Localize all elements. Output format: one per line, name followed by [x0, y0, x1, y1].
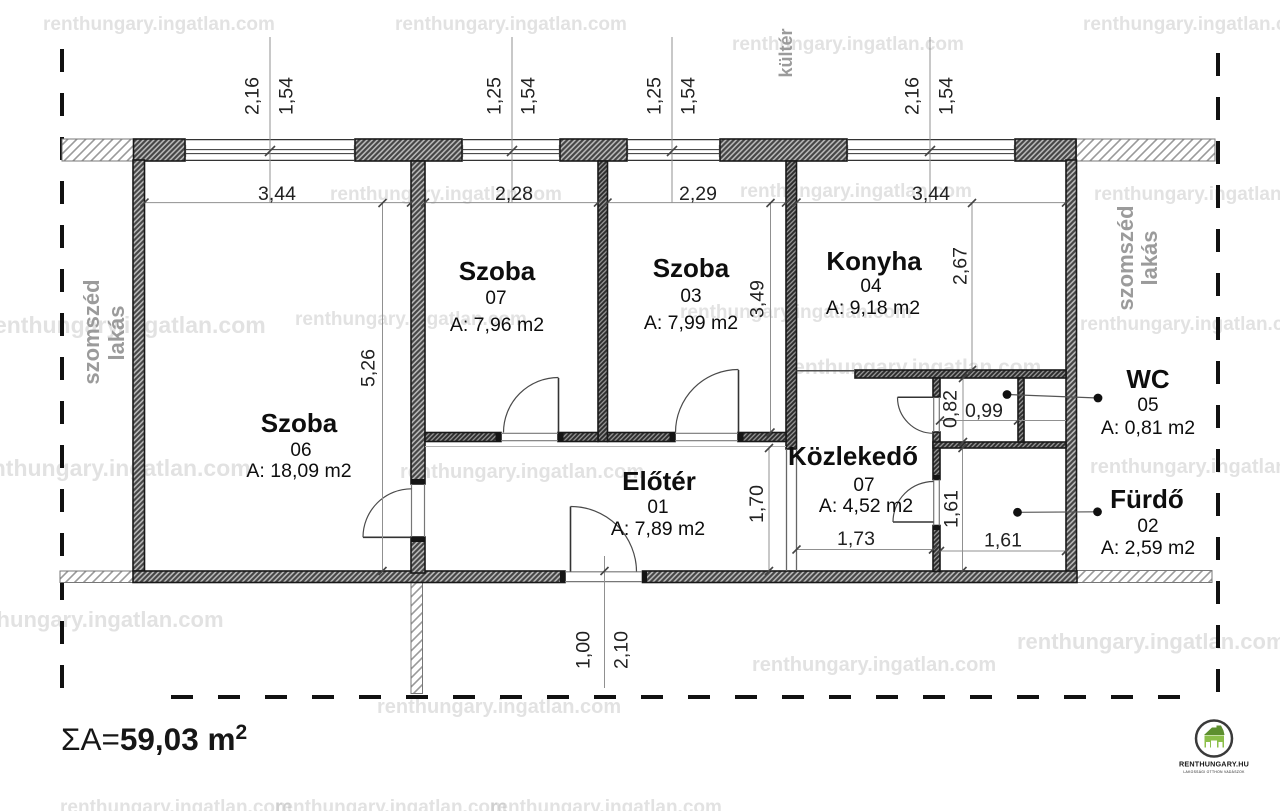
svg-text:Szoba: Szoba [653, 253, 730, 283]
svg-text:Előtér: Előtér [622, 466, 696, 496]
svg-text:01: 01 [647, 497, 668, 518]
svg-text:2,16: 2,16 [242, 77, 264, 115]
svg-text:renthungary.ingatlan.com: renthungary.ingatlan.com [275, 797, 507, 811]
svg-text:1,54: 1,54 [276, 77, 298, 115]
svg-text:1,25: 1,25 [644, 77, 666, 115]
svg-text:0,99: 0,99 [965, 400, 1003, 422]
svg-text:renthungary.ingatlan.com: renthungary.ingatlan.com [1094, 184, 1280, 205]
svg-text:renthungary.ingatlan.com: renthungary.ingatlan.com [60, 797, 292, 811]
svg-text:renthungary.ingatlan.com: renthungary.ingatlan.com [395, 14, 627, 35]
svg-text:03: 03 [680, 286, 701, 307]
svg-text:szomszéd: szomszéd [1113, 205, 1138, 310]
svg-text:2,16: 2,16 [902, 77, 924, 115]
svg-text:A: 9,18 m2: A: 9,18 m2 [826, 297, 920, 319]
svg-text:Szoba: Szoba [261, 408, 338, 438]
svg-text:A: 7,96 m2: A: 7,96 m2 [450, 314, 544, 336]
svg-text:renthungary.ingatlan.com: renthungary.ingatlan.com [1080, 314, 1280, 335]
svg-text:1,61: 1,61 [984, 530, 1022, 552]
svg-text:0,82: 0,82 [940, 390, 962, 428]
svg-text:1,73: 1,73 [837, 528, 875, 550]
svg-text:A: 18,09 m2: A: 18,09 m2 [246, 460, 351, 482]
svg-text:Fürdő: Fürdő [1110, 484, 1184, 514]
svg-text:1,54: 1,54 [518, 77, 540, 115]
svg-text:szomszéd: szomszéd [79, 279, 104, 384]
svg-text:3,44: 3,44 [258, 183, 296, 205]
svg-text:3,44: 3,44 [912, 183, 950, 205]
svg-text:06: 06 [290, 440, 311, 461]
svg-text:renthungary.ingatlan.com: renthungary.ingatlan.com [1083, 14, 1280, 35]
svg-text:kültér: kültér [776, 28, 796, 77]
svg-text:A: 7,89 m2: A: 7,89 m2 [611, 518, 705, 540]
svg-text:renthungary.ingatlan.com: renthungary.ingatlan.com [377, 696, 621, 718]
svg-text:A: 4,52 m2: A: 4,52 m2 [819, 495, 913, 517]
svg-text:2,67: 2,67 [950, 247, 972, 285]
svg-text:renthungary.ingatlan.com: renthungary.ingatlan.com [400, 461, 644, 483]
svg-text:renthungary.ingatlan.com: renthungary.ingatlan.com [43, 14, 275, 35]
svg-text:04: 04 [860, 276, 882, 297]
svg-text:renthungary.ingatlan.com: renthungary.ingatlan.com [732, 34, 964, 55]
svg-text:LAKOSSÁGI OTTHON VADÁSZOK: LAKOSSÁGI OTTHON VADÁSZOK [1183, 770, 1245, 774]
svg-text:A: 2,59 m2: A: 2,59 m2 [1101, 537, 1195, 559]
svg-text:3,49: 3,49 [747, 280, 769, 318]
svg-text:WC: WC [1126, 364, 1170, 394]
svg-text:Közlekedő: Közlekedő [788, 441, 918, 471]
svg-text:Konyha: Konyha [826, 246, 922, 276]
svg-text:renthungary.ingatlan.com: renthungary.ingatlan.com [0, 607, 224, 632]
svg-text:07: 07 [485, 288, 506, 309]
svg-text:2,10: 2,10 [611, 631, 633, 669]
svg-text:02: 02 [1137, 516, 1158, 537]
svg-text:2,29: 2,29 [679, 183, 717, 205]
svg-text:A: 7,99 m2: A: 7,99 m2 [644, 312, 738, 334]
svg-text:renthungary.ingatlan.com: renthungary.ingatlan.com [1090, 456, 1280, 478]
svg-text:05: 05 [1137, 395, 1158, 416]
svg-text:renthungary.ingatlan.com: renthungary.ingatlan.com [752, 654, 996, 676]
svg-text:1,00: 1,00 [573, 631, 595, 669]
svg-text:5,26: 5,26 [358, 349, 380, 387]
svg-text:1,70: 1,70 [746, 485, 768, 523]
svg-text:1,61: 1,61 [941, 490, 963, 528]
svg-text:2,28: 2,28 [495, 183, 533, 205]
svg-text:Szoba: Szoba [459, 256, 536, 286]
svg-text:renthungary.ingatlan.com: renthungary.ingatlan.com [0, 455, 251, 481]
svg-text:renthungary.ingatlan.com: renthungary.ingatlan.com [490, 797, 722, 811]
svg-text:A: 0,81 m2: A: 0,81 m2 [1101, 417, 1195, 439]
svg-text:07: 07 [853, 475, 874, 496]
svg-text:lakás: lakás [1137, 230, 1162, 285]
svg-text:1,25: 1,25 [484, 77, 506, 115]
svg-text:lakás: lakás [104, 305, 129, 360]
svg-text:renthungary.ingatlan.com: renthungary.ingatlan.com [1017, 629, 1280, 654]
svg-text:ΣA=59,03 m2: ΣA=59,03 m2 [61, 721, 247, 757]
svg-text:1,54: 1,54 [936, 77, 958, 115]
svg-text:RENTHUNGARY.HU: RENTHUNGARY.HU [1179, 760, 1249, 769]
svg-text:1,54: 1,54 [678, 77, 700, 115]
